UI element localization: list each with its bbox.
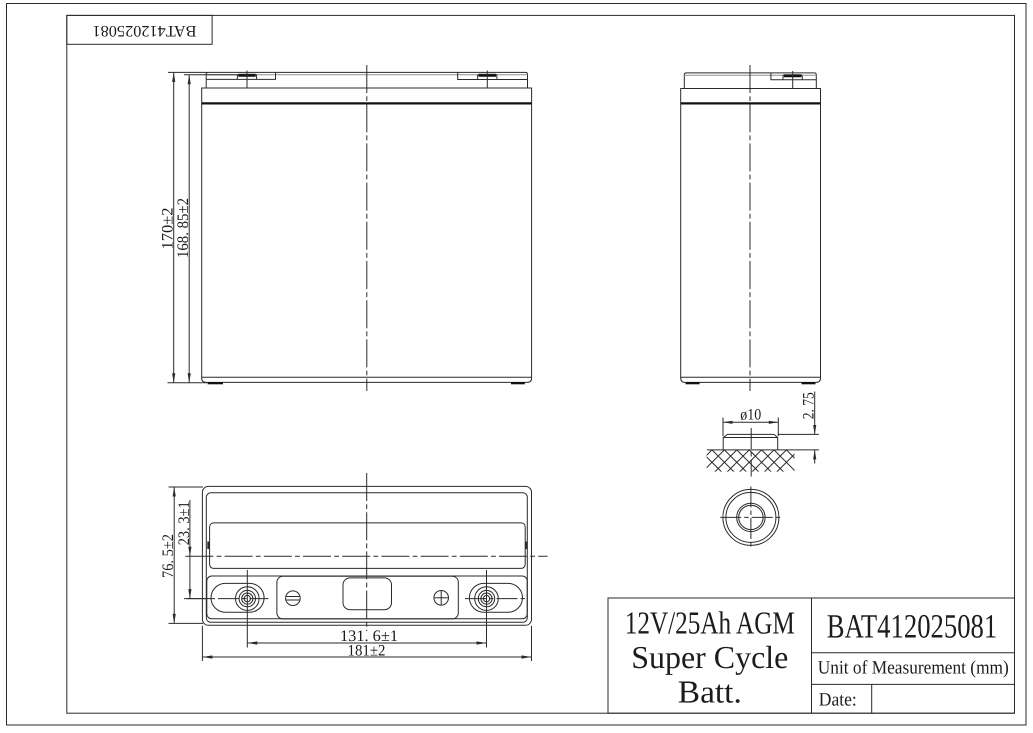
- svg-text:Date:: Date:: [819, 690, 857, 711]
- svg-text:Unit of Measurement (mm): Unit of Measurement (mm): [818, 658, 1009, 679]
- svg-text:12V/25Ah AGM: 12V/25Ah AGM: [625, 605, 795, 641]
- svg-text:BAT412025081: BAT412025081: [827, 609, 998, 646]
- svg-text:76. 5±2: 76. 5±2: [160, 534, 177, 578]
- svg-text:Batt.: Batt.: [678, 674, 742, 710]
- svg-text:BAT412025081: BAT412025081: [93, 22, 197, 39]
- svg-text:181±2: 181±2: [348, 642, 386, 659]
- svg-text:ø10: ø10: [740, 407, 761, 424]
- svg-text:170±2: 170±2: [160, 207, 177, 249]
- svg-text:2. 75: 2. 75: [801, 392, 818, 419]
- svg-text:Super Cycle: Super Cycle: [631, 639, 788, 675]
- svg-text:23. 3±1: 23. 3±1: [176, 501, 193, 545]
- svg-text:168. 85±2: 168. 85±2: [175, 198, 192, 258]
